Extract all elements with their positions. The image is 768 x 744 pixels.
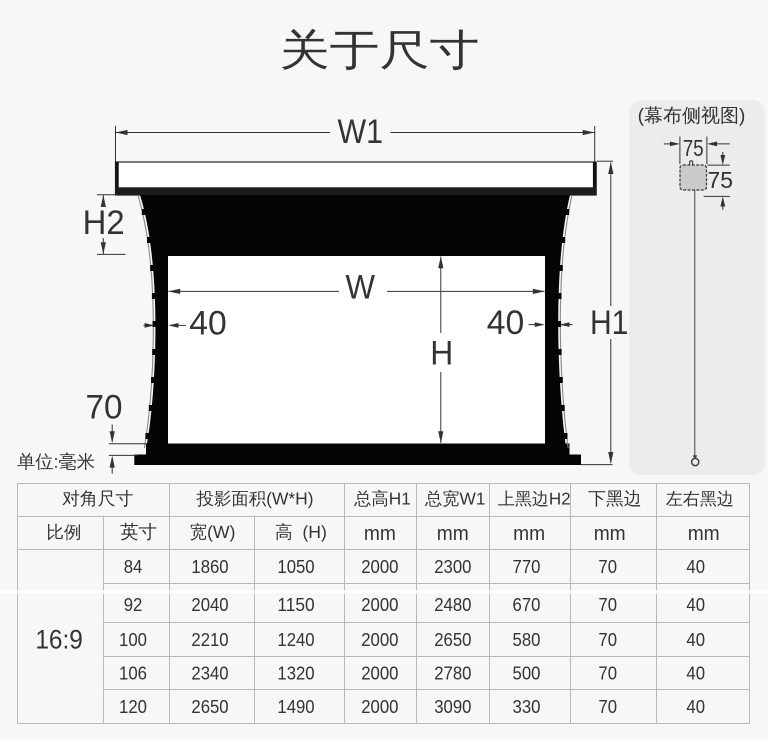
svg-text:40: 40 [686, 594, 705, 615]
svg-text:70: 70 [598, 556, 617, 577]
svg-text:2000: 2000 [361, 594, 398, 615]
svg-text:H2: H2 [83, 204, 125, 242]
svg-text:mm: mm [437, 523, 469, 545]
svg-text:2340: 2340 [191, 662, 228, 683]
svg-text:2000: 2000 [361, 696, 398, 717]
svg-text:75: 75 [683, 135, 704, 161]
svg-text:H: H [430, 335, 453, 373]
svg-text:1320: 1320 [277, 662, 314, 683]
svg-text:2650: 2650 [191, 696, 228, 717]
svg-text:W1: W1 [338, 113, 384, 151]
svg-text:1490: 1490 [277, 696, 314, 717]
svg-text:3090: 3090 [434, 696, 471, 717]
svg-text:2210: 2210 [191, 629, 228, 650]
svg-text:92: 92 [124, 594, 143, 615]
svg-text:40: 40 [487, 304, 525, 342]
svg-text:2000: 2000 [361, 662, 398, 683]
svg-text:500: 500 [513, 662, 541, 683]
svg-text:40: 40 [686, 556, 705, 577]
svg-text:75: 75 [708, 167, 734, 193]
svg-text:670: 670 [513, 594, 541, 615]
svg-text:1050: 1050 [277, 556, 314, 577]
svg-text:40: 40 [686, 629, 705, 650]
svg-text:2480: 2480 [434, 594, 471, 615]
svg-text:2000: 2000 [361, 556, 398, 577]
svg-text:70: 70 [598, 662, 617, 683]
svg-text:1150: 1150 [277, 594, 314, 615]
svg-text:2000: 2000 [361, 629, 398, 650]
svg-text:84: 84 [124, 556, 143, 577]
svg-text:mm: mm [513, 523, 545, 545]
svg-text:mm: mm [594, 523, 626, 545]
svg-text:1240: 1240 [277, 629, 314, 650]
svg-text:40: 40 [686, 662, 705, 683]
svg-text:W: W [346, 269, 376, 307]
svg-text:mm: mm [364, 523, 396, 545]
svg-text:mm: mm [688, 523, 720, 545]
svg-text:100: 100 [119, 629, 147, 650]
svg-text:580: 580 [513, 629, 541, 650]
svg-text:70: 70 [598, 629, 617, 650]
svg-text:40: 40 [686, 696, 705, 717]
svg-text:330: 330 [513, 696, 541, 717]
svg-text:16:9: 16:9 [35, 624, 83, 654]
svg-text:2300: 2300 [434, 556, 471, 577]
svg-text:70: 70 [598, 696, 617, 717]
svg-text:H1: H1 [590, 304, 629, 342]
svg-text:70: 70 [598, 594, 617, 615]
svg-text:70: 70 [86, 389, 123, 427]
svg-text:2780: 2780 [434, 662, 471, 683]
svg-text:770: 770 [513, 556, 541, 577]
svg-text:1860: 1860 [191, 556, 228, 577]
svg-text:2650: 2650 [434, 629, 471, 650]
svg-text:40: 40 [189, 304, 227, 342]
svg-text:106: 106 [119, 662, 147, 683]
svg-text:120: 120 [119, 696, 147, 717]
svg-text:2040: 2040 [191, 594, 228, 615]
